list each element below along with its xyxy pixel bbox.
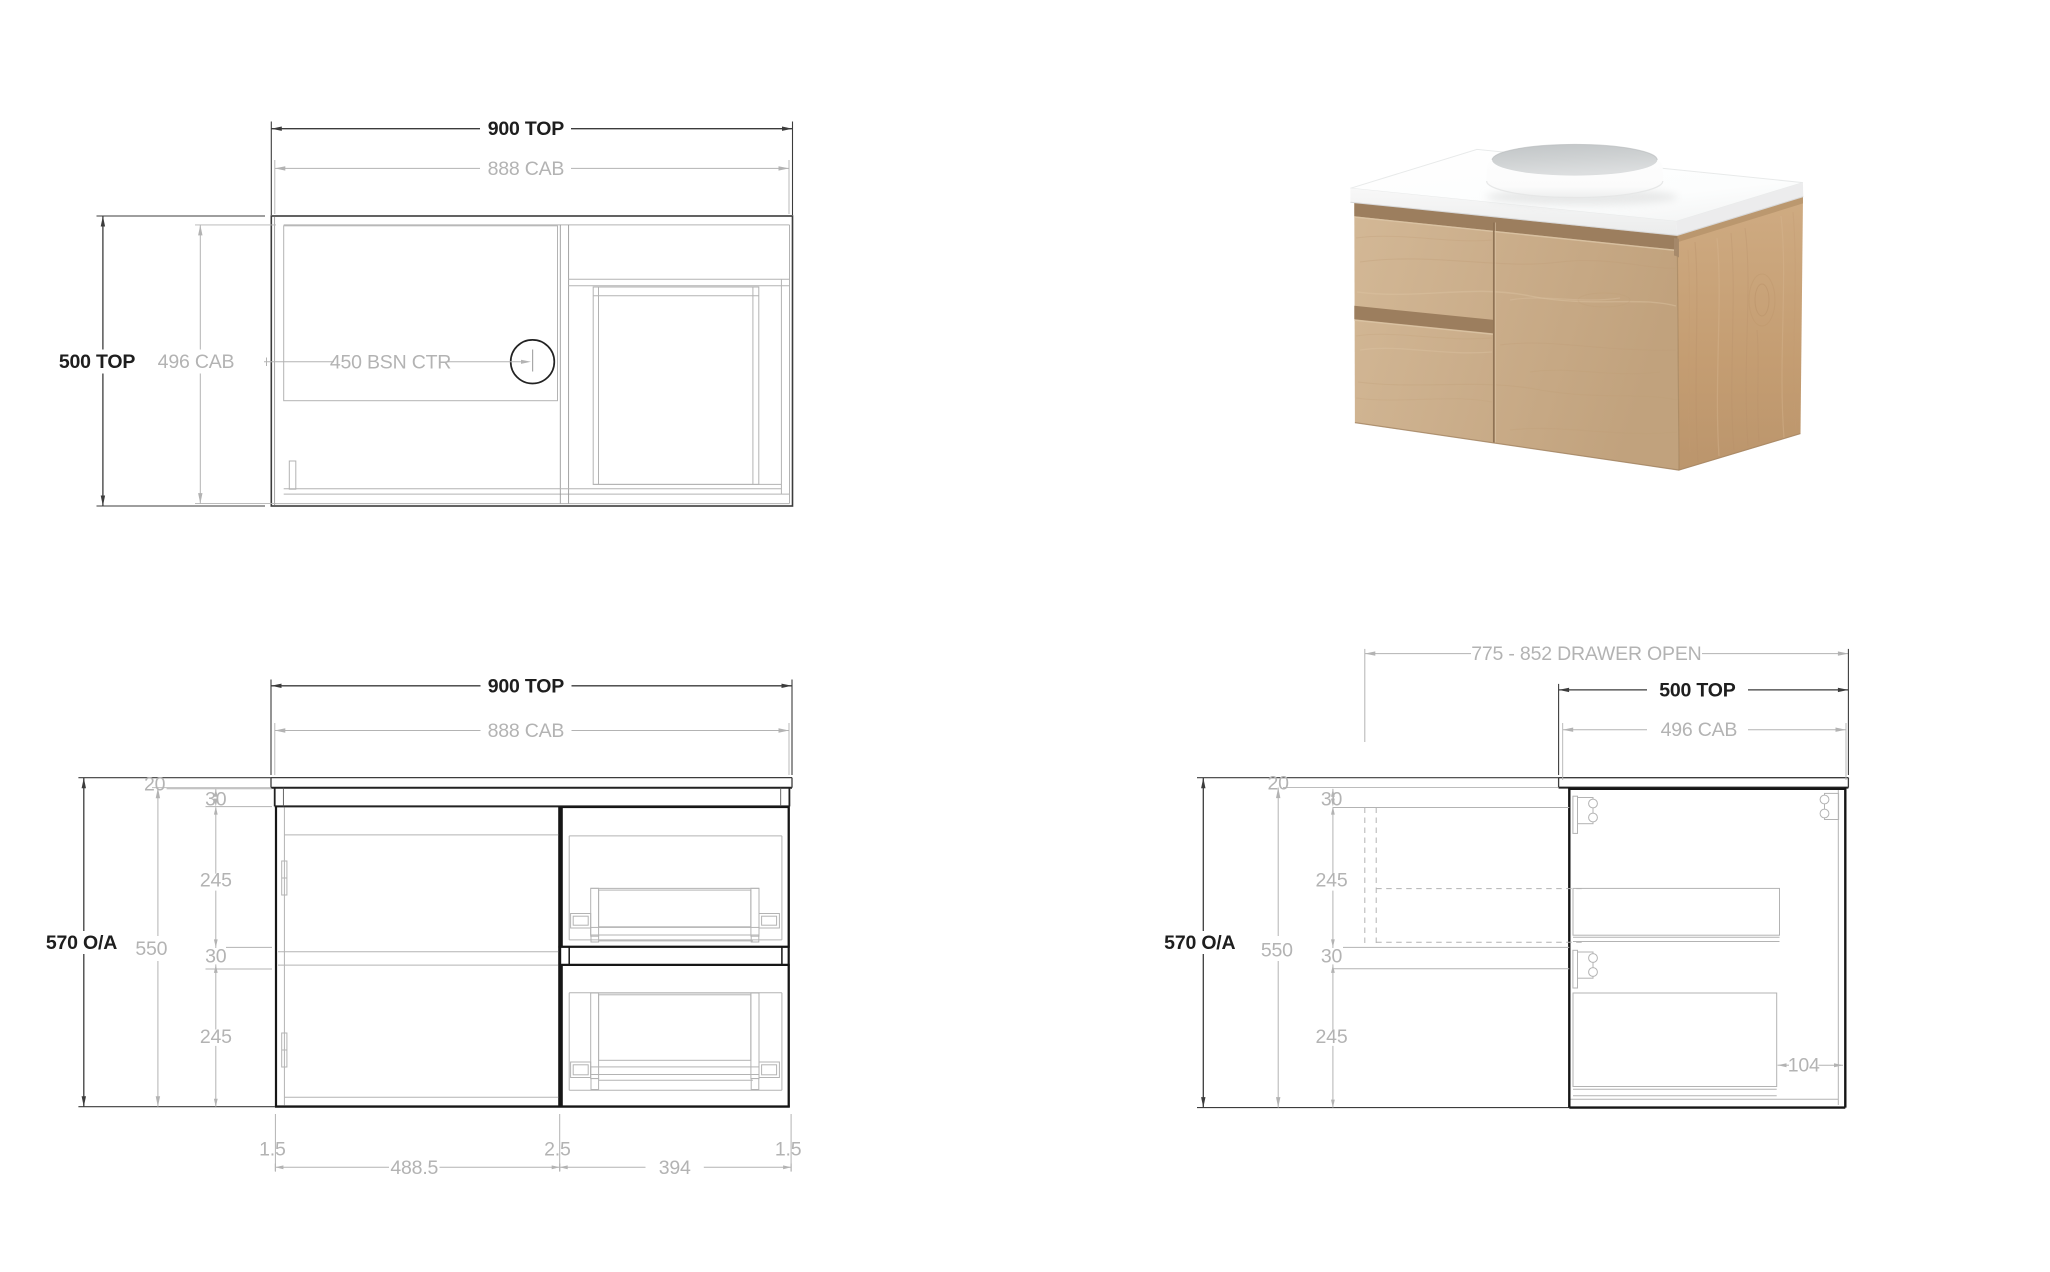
svg-text:496 CAB: 496 CAB (158, 351, 235, 373)
svg-text:245: 245 (1316, 869, 1348, 891)
svg-text:570 O/A: 570 O/A (1164, 932, 1235, 954)
svg-text:20: 20 (1267, 772, 1289, 794)
svg-text:900 TOP: 900 TOP (488, 675, 564, 697)
svg-text:1.5: 1.5 (259, 1139, 286, 1161)
svg-text:488.5: 488.5 (390, 1157, 438, 1179)
svg-text:500 TOP: 500 TOP (59, 351, 135, 373)
svg-text:394: 394 (659, 1157, 691, 1179)
svg-text:104: 104 (1788, 1055, 1820, 1077)
svg-text:775 - 852 DRAWER OPEN: 775 - 852 DRAWER OPEN (1471, 643, 1701, 665)
svg-text:550: 550 (1261, 939, 1293, 961)
svg-text:245: 245 (1316, 1026, 1348, 1048)
svg-text:30: 30 (205, 946, 227, 968)
svg-text:2.5: 2.5 (544, 1139, 571, 1161)
svg-text:500 TOP: 500 TOP (1659, 679, 1735, 701)
svg-text:245: 245 (200, 1026, 232, 1048)
svg-text:570 O/A: 570 O/A (46, 932, 117, 954)
svg-text:1.5: 1.5 (775, 1139, 802, 1161)
svg-text:888 CAB: 888 CAB (488, 158, 565, 180)
svg-text:888 CAB: 888 CAB (488, 720, 565, 742)
svg-text:30: 30 (1321, 946, 1343, 968)
svg-text:245: 245 (200, 869, 232, 891)
svg-text:496 CAB: 496 CAB (1661, 719, 1738, 741)
svg-text:30: 30 (205, 789, 227, 811)
svg-text:450 BSN CTR: 450 BSN CTR (330, 351, 451, 373)
svg-text:30: 30 (1321, 789, 1343, 811)
svg-text:900 TOP: 900 TOP (488, 118, 564, 140)
svg-text:20: 20 (144, 773, 166, 795)
svg-text:550: 550 (135, 938, 167, 960)
